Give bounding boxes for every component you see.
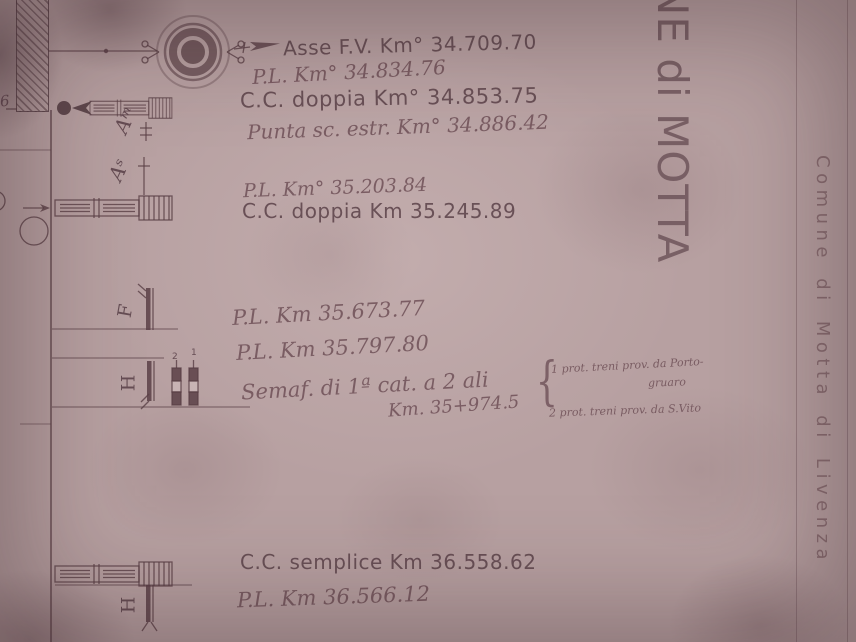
brace-glyph: { <box>536 351 558 412</box>
margin-rule-right <box>847 0 848 642</box>
axis-connector-line <box>48 49 157 53</box>
annotation-cc-semplice-36558: C.C. semplice Km 36.558.62 <box>240 550 536 574</box>
main-track-axis-line <box>0 109 51 642</box>
level-crossing-h-symbol <box>52 358 164 409</box>
annotation-protezione-1b: gruaro <box>648 375 686 389</box>
signal-label-h: H <box>117 375 139 392</box>
annotation-cc-doppia-35245: C.C. doppia Km 35.245.89 <box>242 199 516 223</box>
signal-device-as <box>23 157 172 220</box>
margin-number: 6 <box>0 92 10 111</box>
wing-number-1: 1 <box>191 348 197 358</box>
comune-margin-label: Comune di Motta di Livenza <box>812 155 833 565</box>
station-title-vertical: NE di MOTTA <box>648 0 697 263</box>
railway-plan-document: Asse F.V. Km° 34.709.70 P.L. Km° 34.834.… <box>0 0 856 642</box>
signal-label-h2: H <box>117 597 139 614</box>
disc-signal-circle <box>0 191 48 245</box>
wing-number-2: 2 <box>172 352 178 362</box>
margin-rule-left <box>796 0 797 642</box>
